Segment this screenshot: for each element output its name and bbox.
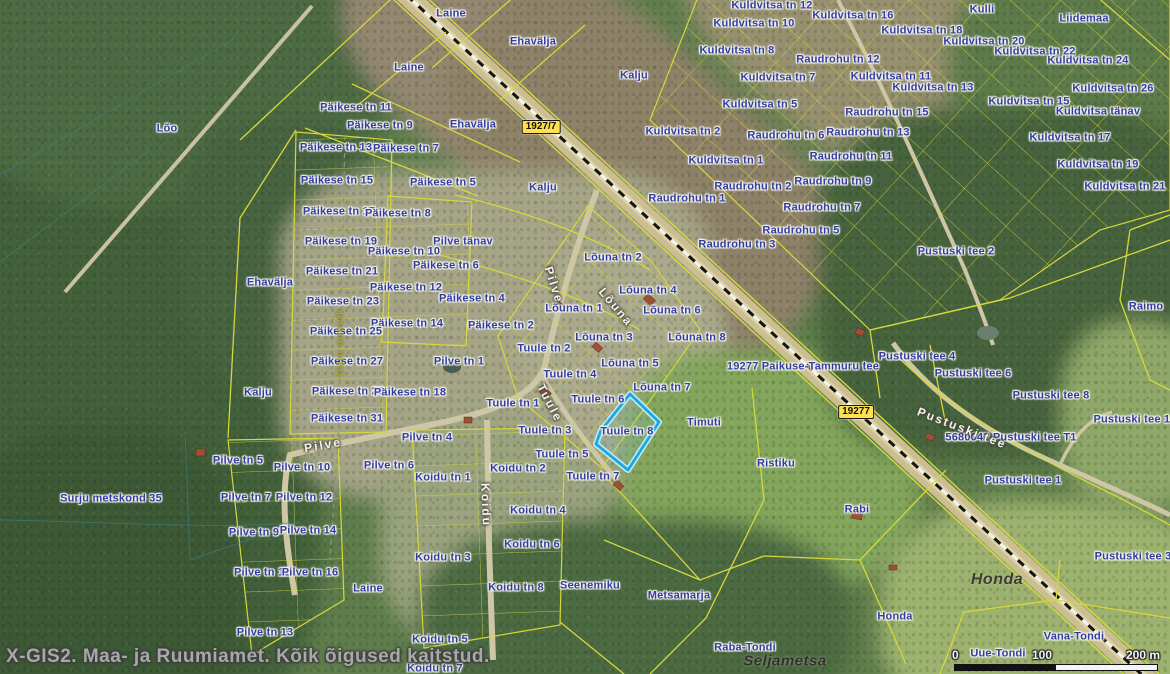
- parcel-label: Raudrohu tn 1: [648, 194, 725, 205]
- parcel-label: Surju metskond 35: [60, 494, 162, 505]
- place-label: Seljametsa: [743, 654, 826, 669]
- parcel-label: Laine: [353, 584, 383, 595]
- parcel-label: Pilve tn 6: [364, 461, 414, 472]
- parcel-label: Honda: [877, 612, 912, 623]
- parcel-label: Kuldvitsa tn 17: [1029, 133, 1110, 144]
- road-name-label: Pilve: [542, 265, 565, 305]
- parcel-label: Liidemaa: [1059, 14, 1108, 25]
- parcel-label: Kalju: [244, 388, 272, 399]
- parcel-label: Lõuna tn 5: [601, 359, 659, 370]
- parcel-label: Pilve tn 1: [434, 357, 484, 368]
- parcel-label: Kuldvitsa tn 19: [1057, 160, 1138, 171]
- map-labels-layer: LaineEhaväljaLaineKaljuEhaväljaLõoPäikes…: [0, 0, 1170, 674]
- parcel-label: Tuule tn 2: [517, 344, 570, 355]
- parcel-label: Päikese tn 11: [320, 103, 392, 114]
- scale-bar: 0 100 200 m: [948, 648, 1162, 672]
- parcel-label: Kuldvitsa tn 5: [723, 100, 798, 111]
- parcel-label: Tuule tn 8: [600, 427, 653, 438]
- parcel-label: Pustuski tee 8: [1013, 391, 1090, 402]
- parcel-label: Tuule tn 3: [518, 426, 571, 437]
- parcel-label: Koidu tn 2: [490, 464, 546, 475]
- parcel-label: Kuldvitsa tn 21: [1084, 182, 1165, 193]
- parcel-label: Ristiku: [757, 459, 795, 470]
- parcel-label: Koidu tn 1: [415, 473, 471, 484]
- parcel-label: Pilve tn 16: [282, 568, 339, 579]
- parcel-label: Pilve tn 4: [402, 433, 452, 444]
- parcel-label: Pilve tn 9: [229, 528, 279, 539]
- scale-segment: [1056, 665, 1157, 670]
- parcel-label: Pilve tn 13: [237, 628, 294, 639]
- parcel-label: 19277 Paikuse-Tammuru tee: [727, 362, 879, 373]
- parcel-label: Lõuna tn 1: [545, 304, 603, 315]
- parcel-label: Laine: [394, 63, 424, 74]
- parcel-label: Koidu tn 5: [412, 635, 468, 646]
- parcel-label: Tuule tn 7: [566, 472, 619, 483]
- road-name-label: Koidu: [479, 483, 493, 527]
- parcel-label: Seenemiku: [560, 581, 620, 592]
- parcel-label: Raudrohu tn 5: [762, 226, 839, 237]
- parcel-label: Pilve tn 5: [213, 456, 263, 467]
- scale-segment: [955, 665, 1056, 670]
- parcel-label: Päikese tn 21: [306, 267, 378, 278]
- parcel-label: Kuldvitsa tn 2: [646, 127, 721, 138]
- parcel-label: Päikese tn 8: [365, 209, 431, 220]
- parcel-label: Kuldvitsa tn 13: [892, 83, 973, 94]
- parcel-label: Raudrohu tn 6: [747, 131, 824, 142]
- parcel-label: Ehavälja: [510, 37, 556, 48]
- parcel-label: Koidu tn 6: [504, 540, 560, 551]
- parcel-label: Vana-Tondi: [1044, 632, 1104, 643]
- parcel-label: Raudrohu tn 11: [810, 152, 893, 163]
- parcel-label: Lõuna tn 8: [668, 333, 726, 344]
- parcel-label: Pustuski tee 10: [1093, 415, 1170, 426]
- parcel-label: Kuldvitsa tn 7: [741, 73, 816, 84]
- parcel-label: Tuule tn 6: [571, 395, 624, 406]
- scale-tick: 100: [1032, 648, 1052, 662]
- road-name-label: Pustuski tee: [916, 405, 1009, 450]
- scale-tick: 0: [952, 648, 959, 662]
- parcel-label: Lõuna tn 3: [575, 333, 633, 344]
- parcel-label: Kalju: [620, 71, 648, 82]
- parcel-label: Päikese tn 27: [311, 357, 383, 368]
- parcel-label: Pilve tn 10: [274, 463, 331, 474]
- parcel-label: Lõuna tn 4: [619, 286, 677, 297]
- parcel-label: Päikese tn 25: [310, 327, 382, 338]
- parcel-label: Lõuna tn 7: [633, 383, 691, 394]
- parcel-label: Pustuski tee 4: [879, 352, 956, 363]
- parcel-label: Ehavälja: [247, 278, 293, 289]
- parcel-label: Raudrohu tn 9: [794, 177, 871, 188]
- parcel-label: Tuule tn 4: [543, 370, 596, 381]
- parcel-label: Päikese tn 31: [311, 414, 383, 425]
- parcel-label: Lõo: [157, 124, 178, 135]
- parcel-label: Pustuski tee 1: [985, 476, 1062, 487]
- parcel-label: Päikese tn 6: [413, 261, 479, 272]
- parcel-label: Kuldvitsa tn 16: [812, 11, 893, 22]
- parcel-label: Kuldvitsa tänav: [1056, 107, 1140, 118]
- parcel-label: Timuti: [687, 418, 721, 429]
- parcel-label: Koidu tn 4: [510, 506, 566, 517]
- parcel-label: Päikese tn 5: [410, 178, 476, 189]
- scale-bar-segments: [954, 664, 1158, 671]
- parcel-label: Rabi: [845, 505, 870, 516]
- map-canvas[interactable]: LaineEhaväljaLaineKaljuEhaväljaLõoPäikes…: [0, 0, 1170, 674]
- parcel-label: Raudrohu tn 12: [796, 55, 879, 66]
- parcel-label: Pilve tänav: [433, 237, 493, 248]
- parcel-label: Kuldvitsa tn 10: [713, 19, 794, 30]
- parcel-label: Päikese tn 9: [347, 121, 413, 132]
- road-name-label: Pilve: [303, 436, 343, 454]
- scale-tick: 200 m: [1126, 648, 1160, 662]
- place-label: Honda: [971, 572, 1023, 588]
- parcel-label: Pustuski tee 2: [918, 247, 995, 258]
- parcel-label: Raudrohu tn 3: [698, 240, 775, 251]
- parcel-label: Päikese tn 18: [374, 388, 446, 399]
- parcel-label: Raudrohu tn 15: [845, 108, 928, 119]
- parcel-label: Kuldvitsa tn 12: [731, 1, 812, 12]
- parcel-label: Raudrohu tn 2: [714, 182, 791, 193]
- parcel-label: Kuldvitsa tn 8: [700, 46, 775, 57]
- parcel-label: Kuldvitsa tn 1: [689, 156, 764, 167]
- parcel-label: Pilve tn 12: [276, 493, 333, 504]
- parcel-label: Päikese tn 7: [373, 144, 439, 155]
- parcel-label: Kalju: [529, 183, 557, 194]
- parcel-label: Päikese tn 10: [368, 247, 440, 258]
- parcel-label: Päikese tn 12: [370, 283, 442, 294]
- parcel-label: Pustuski tee 3: [1095, 552, 1170, 563]
- parcel-label: Lõuna tn 2: [584, 253, 642, 264]
- parcel-label: Päikese tn 13: [300, 143, 372, 154]
- parcel-label: Kuldvitsa tn 26: [1072, 84, 1153, 95]
- parcel-label: Metsamarja: [648, 591, 711, 602]
- parcel-label: Päikese tn 19: [305, 237, 377, 248]
- parcel-label: Lõuna tn 6: [643, 306, 701, 317]
- road-number-marker: 1927/7: [522, 120, 561, 134]
- parcel-label: Pilve tn 7: [221, 493, 271, 504]
- parcel-label: Pilve tn 14: [280, 526, 337, 537]
- parcel-label: Päikese tn 4: [439, 294, 505, 305]
- parcel-label: Koidu tn 8: [488, 583, 544, 594]
- copyright-text: X-GIS2. Maa- ja Ruumiamet. Kõik õigused …: [6, 646, 490, 668]
- parcel-label: Koidu tn 3: [415, 553, 471, 564]
- parcel-label: Kulli: [970, 5, 995, 16]
- parcel-label: Raudrohu tn 13: [826, 128, 909, 139]
- parcel-label: Laine: [436, 9, 466, 20]
- parcel-label: Tuule tn 5: [535, 450, 588, 461]
- parcel-label: Tuule tn 1: [486, 399, 539, 410]
- road-number-marker: 19277: [838, 405, 874, 419]
- parcel-label: Raudrohu tn 7: [783, 203, 860, 214]
- parcel-label: Päikese tn 2: [468, 321, 534, 332]
- parcel-label: Raimo: [1129, 302, 1164, 313]
- water-label: Uulu soovik: [336, 308, 346, 376]
- parcel-label: Kuldvitsa tn 24: [1047, 56, 1128, 67]
- parcel-label: Päikese tn 23: [307, 297, 379, 308]
- parcel-label: Päikese tn 15: [301, 176, 373, 187]
- parcel-label: Pustuski tee 6: [935, 369, 1012, 380]
- parcel-label: Ehavälja: [450, 120, 496, 131]
